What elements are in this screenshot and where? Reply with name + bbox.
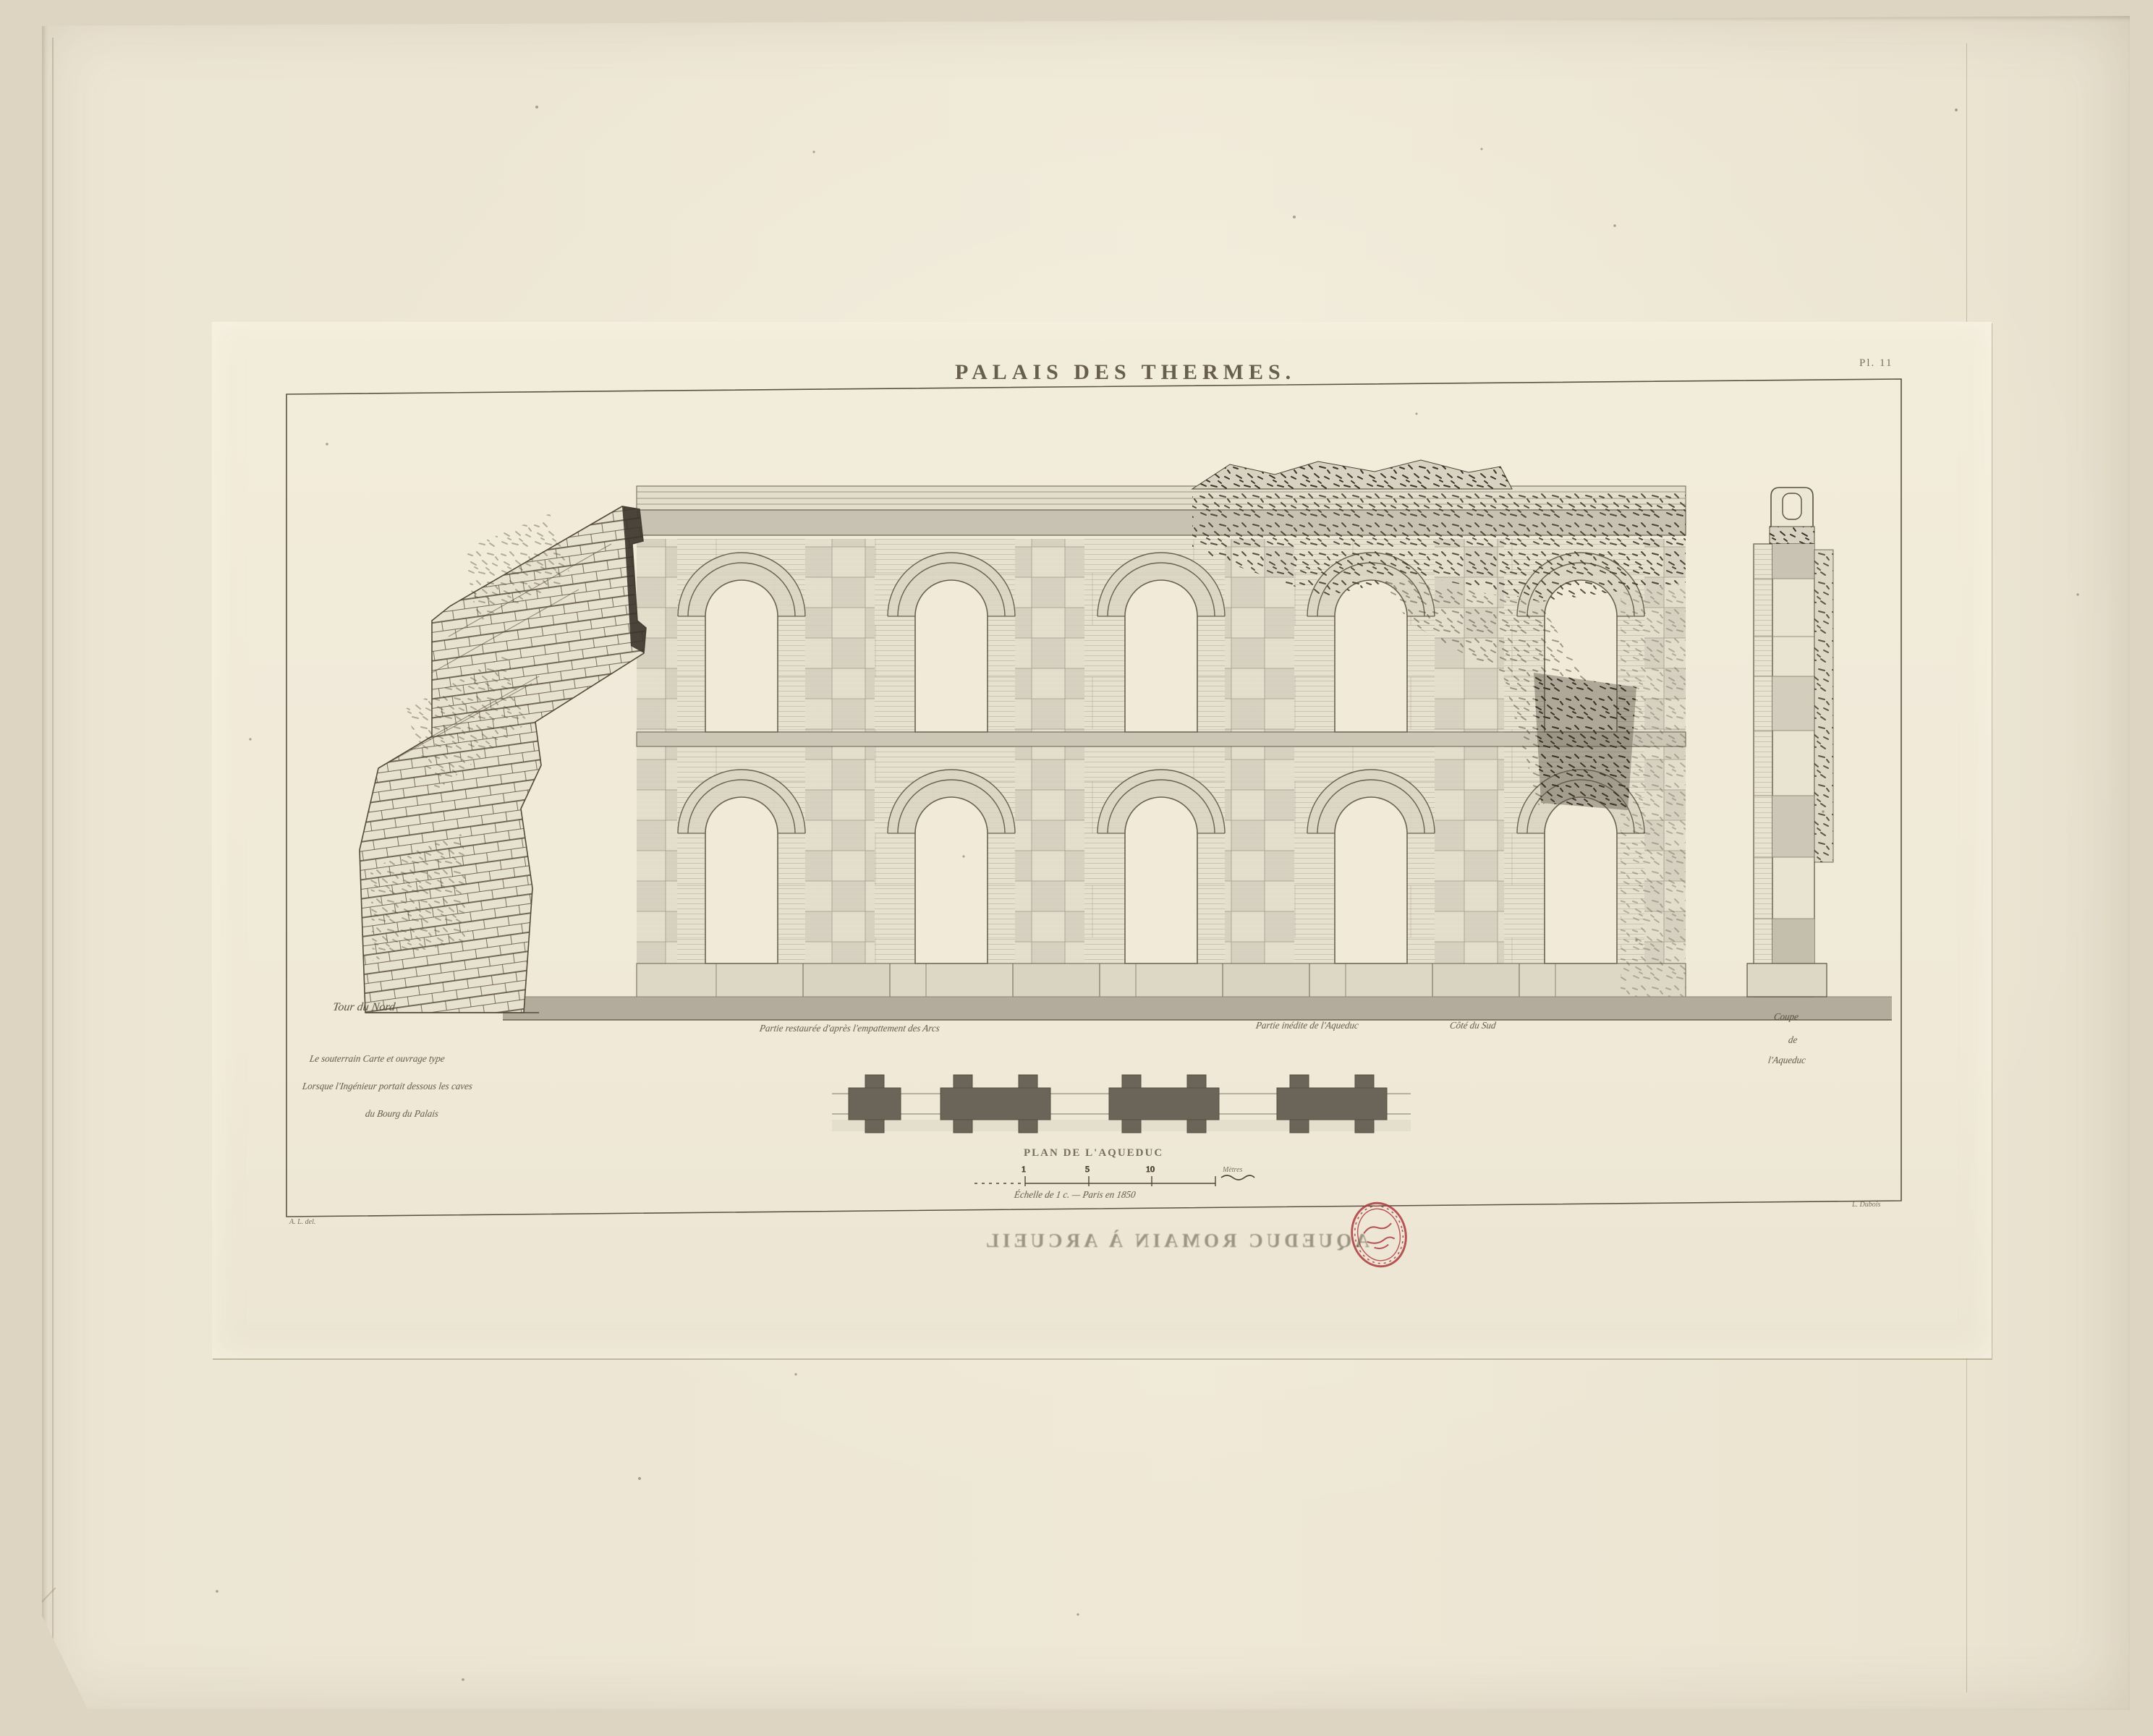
mirrored-ghost-title: AQUEDUC ROMAIN À ARCUEIL xyxy=(982,1230,1369,1252)
section-caption-line: l'Aqueduc xyxy=(1767,1055,1806,1066)
aqueduct-section-pier xyxy=(1747,488,1833,997)
plan-title: PLAN DE L'AQUEDUC xyxy=(1024,1147,1163,1160)
mirrored-ghost-title-text: AQUEDUC ROMAIN À ARCUEIL xyxy=(982,1230,1369,1252)
handwritten-note-line: Le souterrain Carte et ouvrage type xyxy=(309,1053,446,1065)
right-engraver-credit: L. Dubois xyxy=(1852,1201,1880,1209)
scale-bar: 1 5 10 xyxy=(974,1164,1254,1186)
left-engraver-credit: A. L. del. xyxy=(289,1218,315,1226)
plate-title: PALAIS DES THERMES. xyxy=(955,360,1296,385)
tower-north-drawing xyxy=(360,506,646,1013)
handwritten-note-line: Lorsque l'Ingénieur portait dessous les … xyxy=(302,1081,473,1092)
side-caption: Côté du Sud xyxy=(1449,1020,1497,1031)
scale-tick-label: 5 xyxy=(1085,1164,1090,1174)
scale-tick-label: 10 xyxy=(1146,1164,1155,1174)
engraving-drawing: 1 5 10 xyxy=(0,0,2153,1736)
plate-number: Pl. 11 xyxy=(1859,357,1893,370)
scale-unit-label: Mètres xyxy=(1223,1166,1242,1174)
scale-tick-label: 1 xyxy=(1022,1164,1026,1174)
section-caption-line: de xyxy=(1788,1034,1799,1046)
section-caption-line: Coupe xyxy=(1773,1011,1799,1023)
handwritten-note-line: du Bourg du Palais xyxy=(365,1108,439,1120)
scale-note: Échelle de 1 c. — Paris en 1850 xyxy=(1014,1189,1137,1201)
ground-band xyxy=(503,997,1892,1020)
tower-label: Tour du Nord xyxy=(332,1001,396,1014)
restored-caption: Partie restaurée d'après l'empattement d… xyxy=(759,1023,940,1034)
aqueduct-plan xyxy=(832,1075,1411,1133)
unpublished-caption: Partie inédite de l'Aqueduc xyxy=(1255,1020,1359,1031)
scanned-plate-photograph: 1 5 10 PALAIS DES THERMES. Pl. 11 Tour d… xyxy=(0,0,2153,1736)
